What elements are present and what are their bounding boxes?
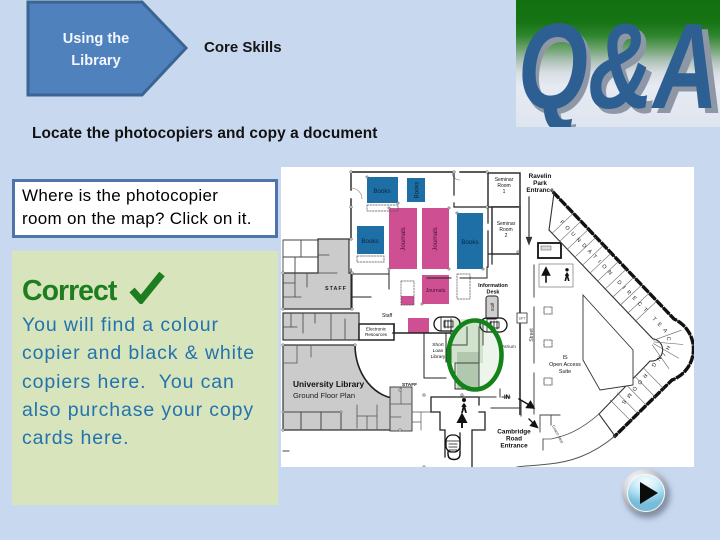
- svg-text:Using the: Using the: [63, 31, 129, 47]
- svg-text:IS: IS: [562, 355, 567, 361]
- svg-text:Open Access: Open Access: [549, 362, 581, 368]
- svg-text:Entrance: Entrance: [500, 443, 528, 450]
- svg-text:Information: Information: [478, 283, 508, 289]
- svg-text:University Library: University Library: [293, 379, 365, 389]
- svg-text:Staff: Staff: [382, 313, 393, 319]
- svg-text:LIFT: LIFT: [519, 317, 526, 321]
- svg-text:Electronic: Electronic: [366, 327, 387, 332]
- svg-text:Suite: Suite: [559, 369, 571, 375]
- svg-text:Journals: Journals: [400, 227, 407, 250]
- svg-text:Books: Books: [361, 238, 378, 245]
- svg-text:Cambridge: Cambridge: [497, 429, 531, 436]
- svg-text:Resources: Resources: [365, 332, 388, 337]
- svg-text:Ravelin: Ravelin: [529, 173, 552, 180]
- svg-text:Journals: Journals: [432, 227, 439, 250]
- svg-text:Ground Floor Plan: Ground Floor Plan: [293, 391, 355, 400]
- svg-text:IN: IN: [504, 395, 510, 401]
- svg-text:1: 1: [503, 189, 506, 195]
- svg-text:2: 2: [505, 233, 508, 239]
- svg-text:STAFF: STAFF: [325, 286, 347, 292]
- svg-text:Loan: Loan: [433, 348, 444, 354]
- svg-text:Books: Books: [461, 239, 478, 246]
- svg-text:Road: Road: [506, 436, 522, 443]
- svg-text:Books: Books: [415, 182, 421, 199]
- svg-text:Atrium: Atrium: [502, 344, 516, 350]
- svg-text:Short: Short: [432, 342, 444, 348]
- svg-text:Street: Street: [529, 328, 535, 342]
- svg-text:Books: Books: [373, 188, 390, 195]
- svg-text:Q&A: Q&A: [518, 0, 718, 127]
- svg-text:Entrance: Entrance: [526, 187, 554, 194]
- svg-text:Staff: Staff: [490, 302, 495, 311]
- svg-text:Park: Park: [533, 180, 547, 187]
- svg-text:Desk: Desk: [487, 290, 500, 296]
- svg-text:Journals: Journals: [426, 288, 446, 294]
- svg-text:Library: Library: [431, 354, 446, 360]
- svg-text:Library: Library: [71, 53, 121, 69]
